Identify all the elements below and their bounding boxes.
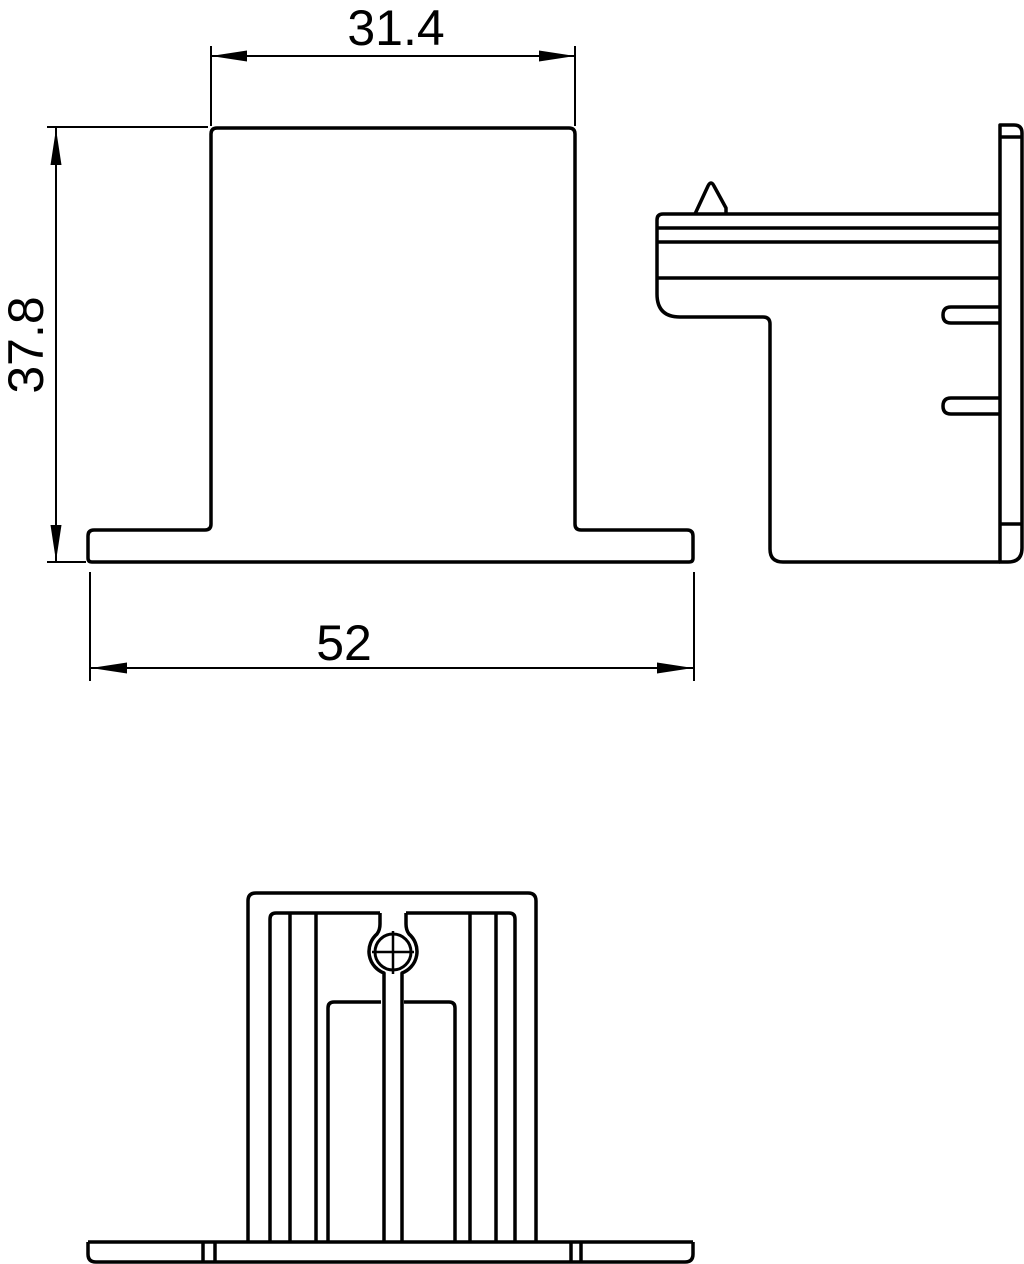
dimension-value-height: 37.8 xyxy=(0,296,54,393)
rib-lines-left xyxy=(290,913,316,1242)
center-pocket-left xyxy=(328,1002,381,1242)
dimension-value-top-width: 31.4 xyxy=(347,0,444,56)
base-plate-break-lines xyxy=(203,1242,581,1262)
base-plate-outline xyxy=(88,1242,693,1262)
side-view-outline xyxy=(657,214,1000,562)
bottom-view xyxy=(88,893,693,1262)
dimension-top-width: 31.4 xyxy=(211,0,575,126)
screw-cross-icon xyxy=(372,931,414,974)
side-view xyxy=(657,125,1022,562)
drawing-canvas: 31.4 37.8 52 xyxy=(0,0,1024,1264)
arrow-left-icon xyxy=(91,663,127,674)
arrow-down-icon xyxy=(51,525,62,561)
clip-tab-upper xyxy=(943,307,1001,323)
front-view-outline xyxy=(88,128,693,562)
arrow-left-icon xyxy=(211,51,247,62)
extension-lines xyxy=(47,127,208,562)
rib-lines-right xyxy=(470,913,496,1242)
clip-tab-lower xyxy=(943,398,1001,414)
center-pocket-right xyxy=(404,1002,455,1242)
extension-lines xyxy=(211,46,575,126)
side-view-groove-lines xyxy=(657,228,1000,278)
arrow-right-icon xyxy=(657,663,693,674)
dimension-value-base-width: 52 xyxy=(316,615,372,671)
inner-wall-left xyxy=(270,913,380,1242)
arrow-up-icon xyxy=(51,129,62,165)
rear-plate-outline xyxy=(1000,125,1022,562)
latch-tooth xyxy=(695,183,726,214)
dimension-height: 37.8 xyxy=(0,127,208,562)
front-view xyxy=(88,128,693,562)
inner-wall-right xyxy=(406,913,515,1242)
dimension-base-width: 52 xyxy=(90,572,694,681)
arrow-right-icon xyxy=(539,51,575,62)
technical-drawing-sheet: 31.4 37.8 52 xyxy=(0,0,1024,1264)
extension-lines xyxy=(90,572,694,681)
rear-plate-cap-lines xyxy=(1000,137,1022,524)
